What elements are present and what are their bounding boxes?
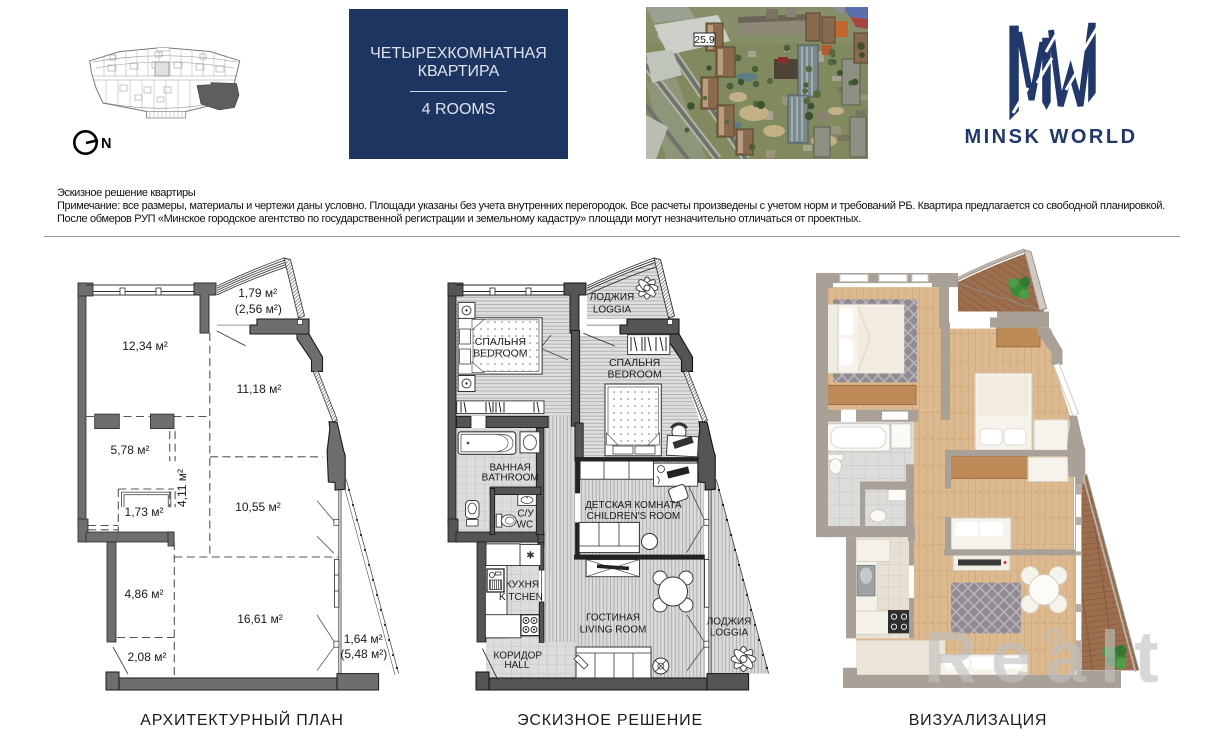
- svg-text:С/У: С/У: [517, 509, 534, 520]
- svg-text:KITCHEN: KITCHEN: [499, 592, 543, 603]
- svg-text:ЛОДЖИЯ: ЛОДЖИЯ: [707, 617, 752, 628]
- svg-text:1,73 м²: 1,73 м²: [125, 505, 164, 519]
- svg-text:BATHROOM: BATHROOM: [482, 473, 539, 484]
- svg-text:4,11 м²: 4,11 м²: [175, 469, 189, 507]
- svg-text:LIVING ROOM: LIVING ROOM: [580, 625, 647, 636]
- svg-text:ЛОДЖИЯ: ЛОДЖИЯ: [590, 292, 635, 303]
- svg-text:CHILDREN'S ROOM: CHILDREN'S ROOM: [587, 511, 681, 522]
- svg-text:LOGGIA: LOGGIA: [593, 305, 632, 316]
- svg-text:MINSK WORLD: MINSK WORLD: [964, 126, 1137, 148]
- svg-text:СПАЛЬНЯ: СПАЛЬНЯ: [609, 357, 660, 369]
- svg-text:2,08 м²: 2,08 м²: [128, 650, 167, 664]
- svg-text:16,61 м²: 16,61 м²: [237, 612, 283, 626]
- svg-text:ДЕТСКАЯ КОМНАТА: ДЕТСКАЯ КОМНАТА: [585, 500, 682, 511]
- svg-text:КУХНЯ: КУХНЯ: [506, 580, 539, 591]
- svg-text:✱: ✱: [526, 551, 534, 562]
- svg-text:1,64 м²: 1,64 м²: [344, 632, 383, 646]
- svg-text:11,18 м²: 11,18 м²: [237, 382, 282, 396]
- svg-text:(5,48 м²): (5,48 м²): [340, 647, 387, 661]
- svg-text:1,79 м²: 1,79 м²: [238, 286, 277, 300]
- svg-text:4,86 м²: 4,86 м²: [125, 587, 164, 601]
- svg-text:25.9: 25.9: [694, 34, 715, 46]
- svg-text:BEDROOM: BEDROOM: [473, 348, 527, 360]
- svg-text:СПАЛЬНЯ: СПАЛЬНЯ: [475, 336, 526, 348]
- svg-text:5,78 м²: 5,78 м²: [111, 443, 150, 457]
- svg-text:ГОСТИНАЯ: ГОСТИНАЯ: [586, 613, 640, 624]
- svg-text:12,34 м²: 12,34 м²: [122, 339, 168, 353]
- svg-text:BEDROOM: BEDROOM: [607, 369, 661, 381]
- svg-text:10,55 м²: 10,55 м²: [235, 500, 281, 514]
- svg-text:N: N: [101, 136, 111, 152]
- svg-text:WC: WC: [517, 520, 534, 531]
- svg-text:LOGGIA: LOGGIA: [710, 628, 749, 639]
- svg-text:HALL: HALL: [504, 660, 529, 671]
- svg-text:(2,56 м²): (2,56 м²): [235, 302, 282, 316]
